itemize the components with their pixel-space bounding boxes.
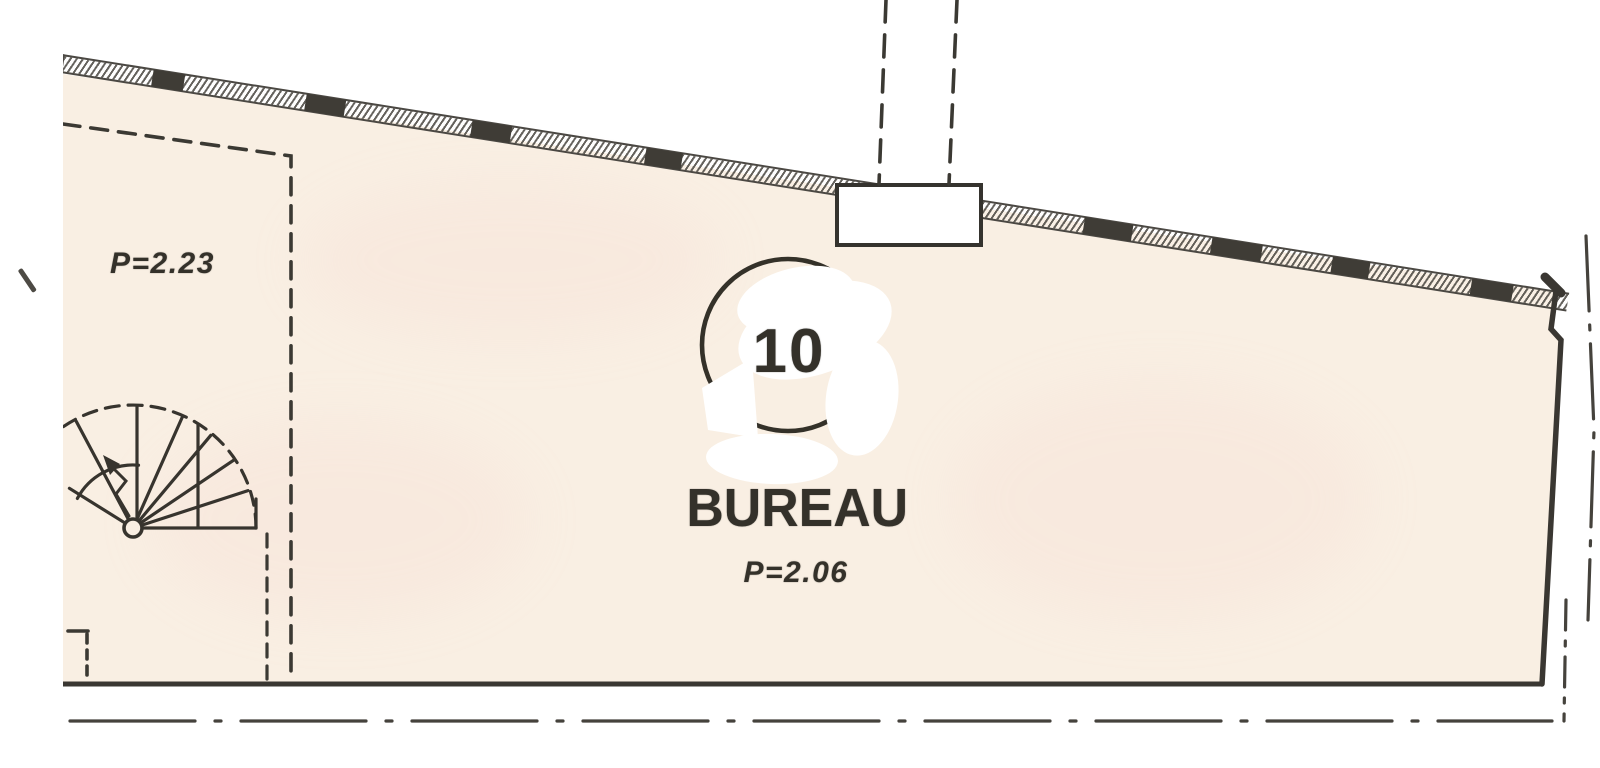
label-ceiling-height-main: P=2.06 [728, 556, 864, 590]
label-ceiling-height-upper: P=2.23 [110, 247, 215, 281]
attic-boundary-dashed-line [63, 124, 291, 681]
wall-end-cap [1545, 277, 1561, 293]
label-room-number: 10 [741, 316, 837, 387]
floor-plan-scan: P=2.23 10 BUREAU P=2.06 [0, 0, 1600, 768]
chimney-flue-dashed-lines [879, 0, 957, 184]
stair-newel-post [124, 519, 142, 537]
axis-line-corner [1564, 600, 1566, 721]
scan-margin-left [0, 0, 63, 768]
door-jamb-bracket [68, 631, 88, 681]
axis-line-right-edge [1586, 236, 1594, 620]
label-room-name: BUREAU [686, 477, 893, 539]
right-wall [1542, 291, 1561, 684]
